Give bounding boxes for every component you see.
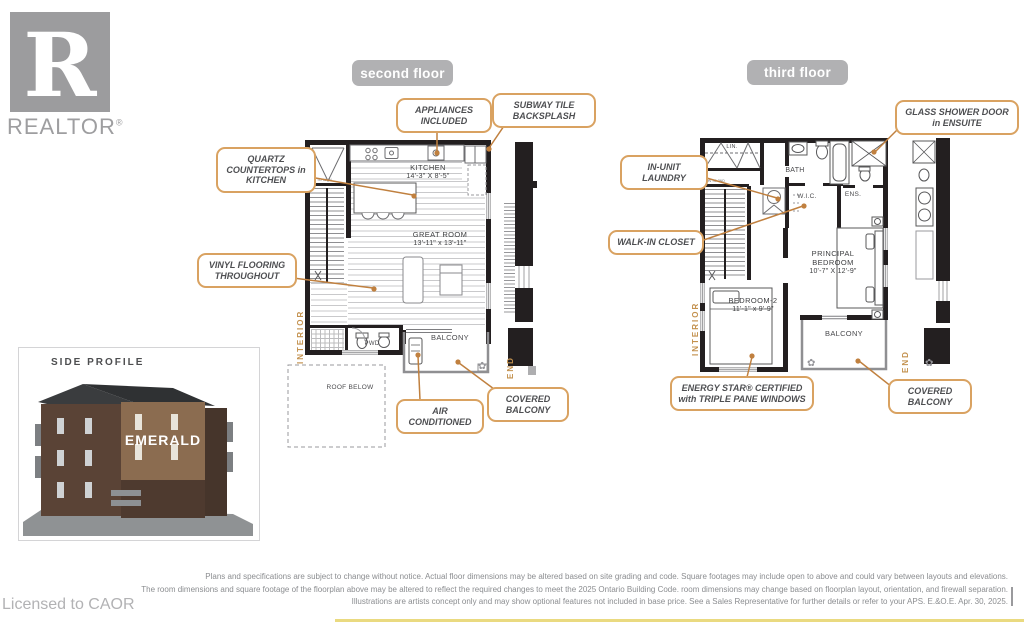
highlight-bar (335, 619, 1024, 622)
facade-wing (205, 408, 227, 516)
facade-left (41, 404, 121, 516)
text-cursor-mark (1011, 587, 1013, 606)
great-room-dims: 13'-11" x 13'-11" (396, 240, 484, 247)
side-profile-title: SIDE PROFILE (51, 357, 144, 368)
second-floor-title: second floor (360, 66, 445, 81)
building-name: EMERALD (125, 432, 201, 448)
callout-walk-in-closet: WALK-IN CLOSET (608, 230, 704, 255)
realtor-wordmark: REALTOR® (7, 114, 123, 140)
interior-label-second: INTERIOR (296, 318, 305, 364)
balcony-label-third: BALCONY (805, 329, 883, 338)
balcony-structure-third: ✿ (802, 320, 886, 369)
end-strip-stub (528, 366, 536, 375)
licensed-to-text: Licensed to CAOR (2, 596, 135, 614)
disclaimer-line-3: Illustrations are artists concept only a… (100, 596, 1008, 609)
kitchen-fixtures (350, 145, 486, 219)
planter-icon: ✿ (925, 358, 933, 369)
closet-doors (312, 148, 344, 181)
callout-energy-star: ENERGY STAR® CERTIFIED with TRIPLE PANE … (670, 376, 814, 411)
roof-below-label: ROOF BELOW (312, 384, 388, 391)
pwd-label: PWD (354, 341, 390, 347)
kitchen-label: KITCHEN 14'-3" X 8'-5" (384, 163, 472, 180)
linen-label: LIN. (711, 144, 753, 150)
stair-note-text-third: DN TO 2ND (706, 179, 725, 183)
side-profile-inset: SIDE PROFILE EMERALD (18, 347, 260, 541)
callout-covered-balcony-third: COVERED BALCONY (888, 379, 972, 414)
floorplan-sheet: { "branding": { "logo_letter": "R", "log… (0, 0, 1024, 624)
end-label-third: END (901, 331, 910, 373)
callout-vinyl: VINYL FLOORING THROUGHOUT (197, 253, 297, 288)
bedroom2-dims: 11'-1" x 9'-9" (713, 306, 793, 313)
principal-dims: 10'-7" X 12'-9" (803, 268, 863, 275)
disclaimer: Plans and specifications are subject to … (100, 571, 1008, 609)
principal-bedroom-label: PRINCIPAL BEDROOM 10'-7" X 12'-9" (803, 249, 863, 275)
interior-label-third: INTERIOR (691, 308, 700, 356)
logo-word-text: REALTOR (7, 114, 116, 139)
facade-lower (121, 480, 205, 518)
bedroom2-name: BEDROOM-2 (713, 296, 793, 305)
great-room-label: GREAT ROOM 13'-11" x 13'-11" (396, 230, 484, 247)
realtor-logo-r: R (10, 12, 110, 112)
end-label-second: END (506, 337, 515, 379)
second-floor-pill: second floor (352, 60, 453, 86)
balcony-label-second: BALCONY (412, 333, 488, 342)
logo-letter: R (23, 13, 97, 112)
building-rendering: EMERALD (23, 372, 253, 536)
realtor-logo: R (10, 12, 110, 112)
bath-label: BATH (771, 167, 819, 174)
laundry-closet (763, 188, 785, 214)
principal-name: PRINCIPAL BEDROOM (803, 249, 863, 267)
kitchen-dims: 14'-3" X 8'-5" (384, 173, 472, 180)
bedroom2-label: BEDROOM-2 11'-1" x 9'-9" (713, 296, 793, 313)
registered-mark: ® (116, 118, 124, 128)
third-floor-title: third floor (764, 65, 831, 80)
callout-glass-shower: GLASS SHOWER DOOR in ENSUITE (895, 100, 1019, 135)
disclaimer-line-1: Plans and specifications are subject to … (100, 571, 1008, 584)
roof-below-outline (288, 365, 385, 447)
stair-direction-mark (315, 271, 321, 280)
callout-air-conditioned: AIR CONDITIONED (396, 399, 484, 434)
stair-direction-mark (709, 271, 715, 280)
great-room-furniture (403, 257, 462, 303)
callout-quartz: QUARTZ COUNTERTOPS in KITCHEN (216, 147, 316, 193)
bath-fixtures (789, 141, 849, 184)
ensuite-fixtures (852, 141, 886, 181)
callout-in-unit-laundry: IN-UNIT LAUNDRY (620, 155, 708, 190)
callout-covered-balcony-second: COVERED BALCONY (487, 387, 569, 422)
disclaimer-line-2: The room dimensions and square footage o… (100, 584, 1008, 597)
ensuite-label: ENS. (833, 191, 873, 198)
planter-icon: ✿ (807, 358, 815, 369)
great-room-name: GREAT ROOM (396, 230, 484, 239)
kitchen-name: KITCHEN (384, 163, 472, 172)
planter-icon: ✿ (478, 361, 486, 372)
callout-appliances: APPLIANCES INCLUDED (396, 98, 492, 133)
callout-subway-tile: SUBWAY TILE BACKSPLASH (492, 93, 596, 128)
wic-label: W.I.C. (785, 193, 829, 200)
third-floor-pill: third floor (747, 60, 848, 85)
